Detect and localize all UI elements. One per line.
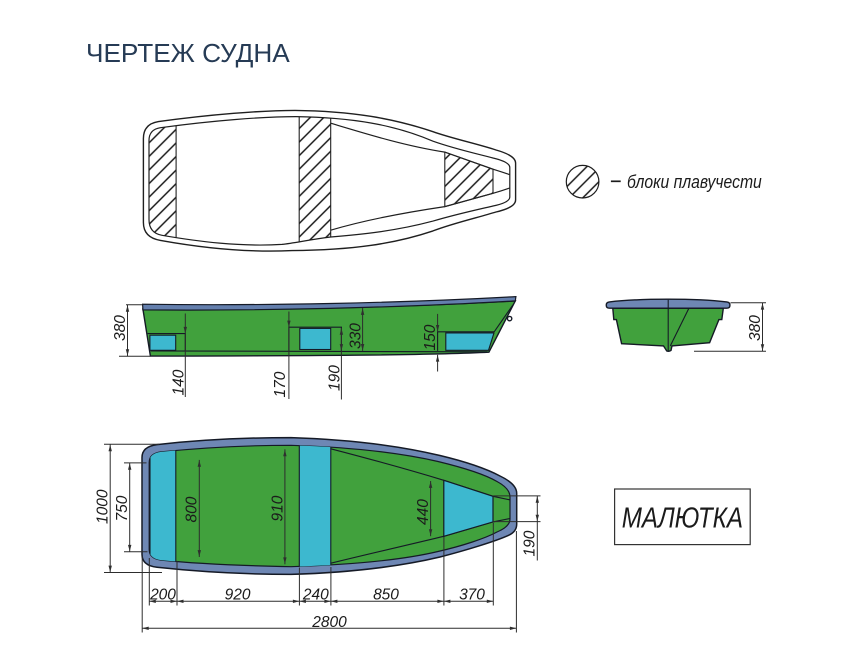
svg-text:200: 200 [149, 586, 176, 603]
svg-text:800: 800 [184, 496, 201, 522]
svg-text:140: 140 [170, 369, 187, 395]
svg-text:блоки плавучести: блоки плавучести [627, 171, 762, 193]
svg-text:750: 750 [114, 495, 131, 521]
svg-text:150: 150 [422, 324, 439, 350]
svg-text:240: 240 [302, 586, 329, 603]
svg-text:2800: 2800 [311, 614, 347, 631]
svg-text:1000: 1000 [95, 489, 112, 524]
svg-text:440: 440 [415, 499, 432, 525]
svg-text:ЧЕРТЕЖ СУДНА: ЧЕРТЕЖ СУДНА [86, 38, 290, 68]
svg-text:190: 190 [327, 365, 344, 391]
svg-text:170: 170 [272, 371, 289, 397]
svg-text:910: 910 [269, 495, 286, 521]
svg-text:380: 380 [747, 315, 764, 341]
svg-text:370: 370 [459, 586, 485, 603]
svg-text:МАЛЮТКА: МАЛЮТКА [622, 502, 743, 534]
svg-text:190: 190 [522, 530, 539, 556]
svg-text:920: 920 [225, 586, 251, 603]
svg-text:850: 850 [373, 586, 399, 603]
svg-text:330: 330 [347, 323, 364, 349]
svg-text:380: 380 [112, 315, 129, 341]
